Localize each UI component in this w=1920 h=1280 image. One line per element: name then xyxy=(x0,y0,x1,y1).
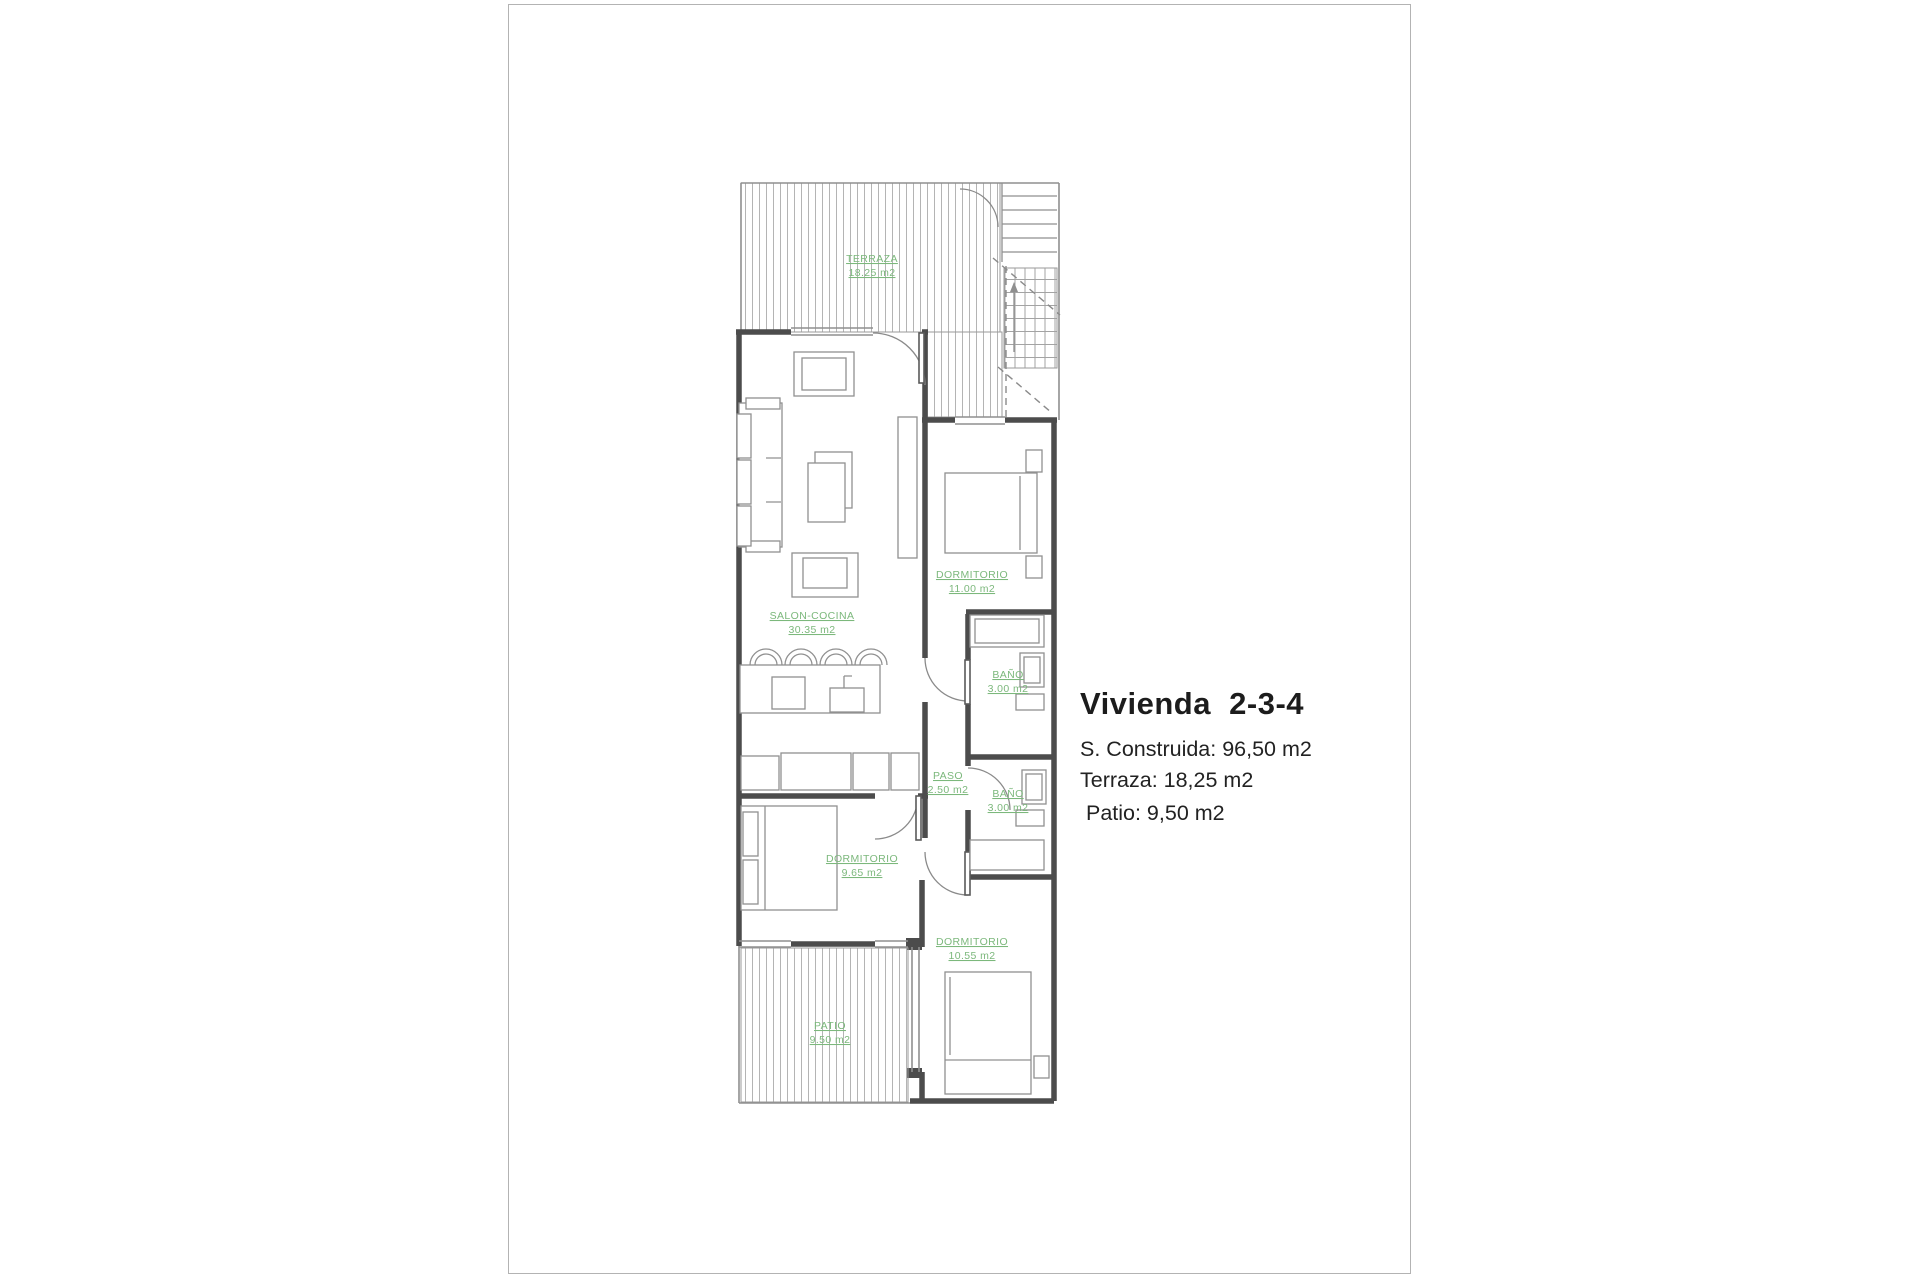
entrance-door-leaf xyxy=(919,333,924,383)
terrace-area-line: Terraza: 18,25 m2 xyxy=(1080,765,1312,796)
shower-tray-2 xyxy=(970,840,1044,870)
room-area: 18.25 m2 xyxy=(849,267,896,279)
room-area: 9.50 m2 xyxy=(810,1034,851,1046)
room-name: BAÑO xyxy=(992,787,1023,800)
nightstand-3 xyxy=(1034,1056,1049,1078)
room-name: DORMITORIO xyxy=(826,853,898,865)
kitchen-sink xyxy=(772,677,805,709)
entrance-door-arc xyxy=(873,333,925,385)
cabinet xyxy=(891,753,919,790)
media-unit xyxy=(898,417,917,558)
kitchen-cabinets xyxy=(741,753,919,790)
wall-middle xyxy=(922,330,925,1101)
bedroom1-furniture xyxy=(945,450,1042,578)
room-label-dormitorio1: DORMITORIO 11.00 m2 xyxy=(936,569,1008,595)
cabinet xyxy=(853,753,889,790)
room-area: 30.35 m2 xyxy=(789,624,836,636)
floor-plan-drawing: TERRAZA 18.25 m2 SALON-COCINA 30.35 m2 D… xyxy=(0,0,1920,1280)
room-area: 2.50 m2 xyxy=(928,784,969,796)
bath2-fixtures xyxy=(970,770,1046,870)
room-area: 3.00 m2 xyxy=(988,802,1029,814)
bed-3 xyxy=(945,972,1031,1094)
room-label-paso: PASO 2.50 m2 xyxy=(928,770,969,796)
sink-2-basin xyxy=(1026,774,1042,800)
kitchen-island xyxy=(740,649,887,713)
room-name: DORMITORIO xyxy=(936,936,1008,948)
room-name: PATIO xyxy=(814,1020,846,1032)
bed-2-pillow xyxy=(743,812,758,856)
sofa-cushion xyxy=(737,506,751,546)
sofa-cushion xyxy=(737,414,751,458)
bedroom3-door-arc xyxy=(925,852,968,895)
shower-tray-inner xyxy=(975,619,1039,643)
toilet-1 xyxy=(1016,694,1044,710)
room-label-dormitorio3: DORMITORIO 10.55 m2 xyxy=(936,936,1008,962)
room-area: 10.55 m2 xyxy=(949,950,996,962)
nightstand xyxy=(1026,556,1042,578)
bath1-door-leaf xyxy=(965,660,970,704)
bedroom2-door-arc xyxy=(875,796,918,839)
salon-furniture xyxy=(737,352,917,597)
bedroom3-furniture xyxy=(945,972,1049,1094)
room-name: DORMITORIO xyxy=(936,569,1008,581)
bath1-fixtures xyxy=(970,615,1044,710)
room-name: BAÑO xyxy=(992,668,1023,681)
built-area-line: S. Construida: 96,50 m2 xyxy=(1080,734,1312,765)
stair-crosshatch xyxy=(1004,268,1057,368)
info-panel: Vivienda 2-3-4 S. Construida: 96,50 m2 T… xyxy=(1080,686,1312,829)
patio-window xyxy=(739,941,791,947)
cooktop xyxy=(830,688,864,712)
cabinet xyxy=(781,753,851,790)
room-name: PASO xyxy=(933,770,963,782)
bar-stools xyxy=(750,649,887,665)
patio-area-line: Patio: 9,50 m2 xyxy=(1080,798,1312,829)
room-area: 9.65 m2 xyxy=(842,867,883,879)
cabinet xyxy=(741,756,779,790)
coffee-table-2 xyxy=(808,463,845,522)
room-label-salon: SALON-COCINA 30.35 m2 xyxy=(770,610,855,636)
bedroom2-door-leaf xyxy=(916,796,921,840)
sofa-cushion xyxy=(737,460,751,504)
bedroom2-furniture xyxy=(741,806,837,910)
terrace-hatch-lower xyxy=(927,332,1002,417)
bedroom3-door-leaf xyxy=(965,852,970,895)
sink-1-basin xyxy=(1024,657,1040,683)
stair-treads xyxy=(1002,183,1057,262)
bedroom1-window xyxy=(955,417,1005,424)
bed-1 xyxy=(945,473,1037,553)
nightstand xyxy=(1026,450,1042,472)
room-area: 3.00 m2 xyxy=(988,683,1029,695)
room-area: 11.00 m2 xyxy=(949,583,995,595)
bath1-door-arc xyxy=(925,658,968,701)
floor-plan-page: TERRAZA 18.25 m2 SALON-COCINA 30.35 m2 D… xyxy=(0,0,1920,1280)
armchair-top-seat xyxy=(802,358,846,390)
dwelling-title: Vivienda 2-3-4 xyxy=(1080,686,1312,722)
bed-2-pillow xyxy=(743,860,758,904)
room-name: TERRAZA xyxy=(846,253,898,265)
room-name: SALON-COCINA xyxy=(770,610,855,622)
patio-door-opening xyxy=(875,941,908,947)
armchair-bottom-seat xyxy=(803,558,847,588)
sofa-armrest-top xyxy=(746,398,780,409)
bedroom3-patio-window xyxy=(912,947,919,1072)
